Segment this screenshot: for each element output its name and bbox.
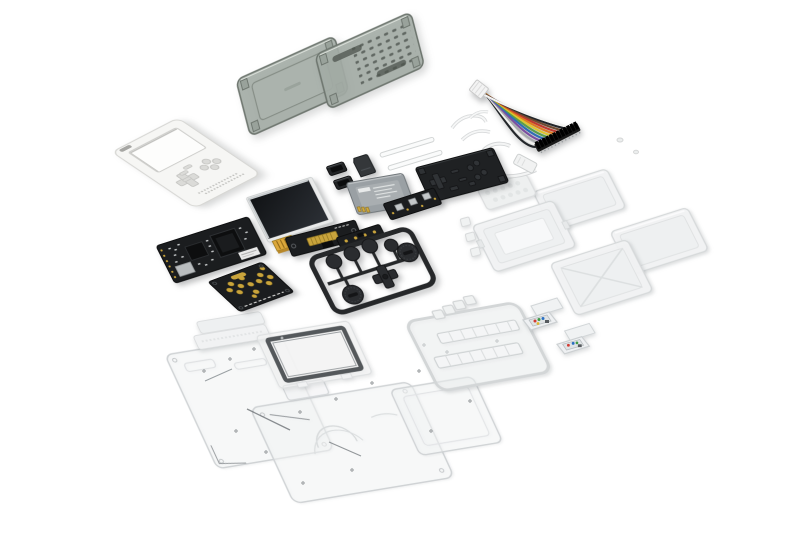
screen-bezel: [267, 328, 362, 381]
white-hardware-bit: [634, 150, 639, 154]
kit-flatlay-scene: Laser-cut clear acrylic panel Laser-cut …: [0, 0, 800, 533]
white-hardware-bit: [617, 138, 623, 142]
product-photo-canvas: Laser-cut clear acrylic panel Laser-cut …: [0, 0, 800, 533]
